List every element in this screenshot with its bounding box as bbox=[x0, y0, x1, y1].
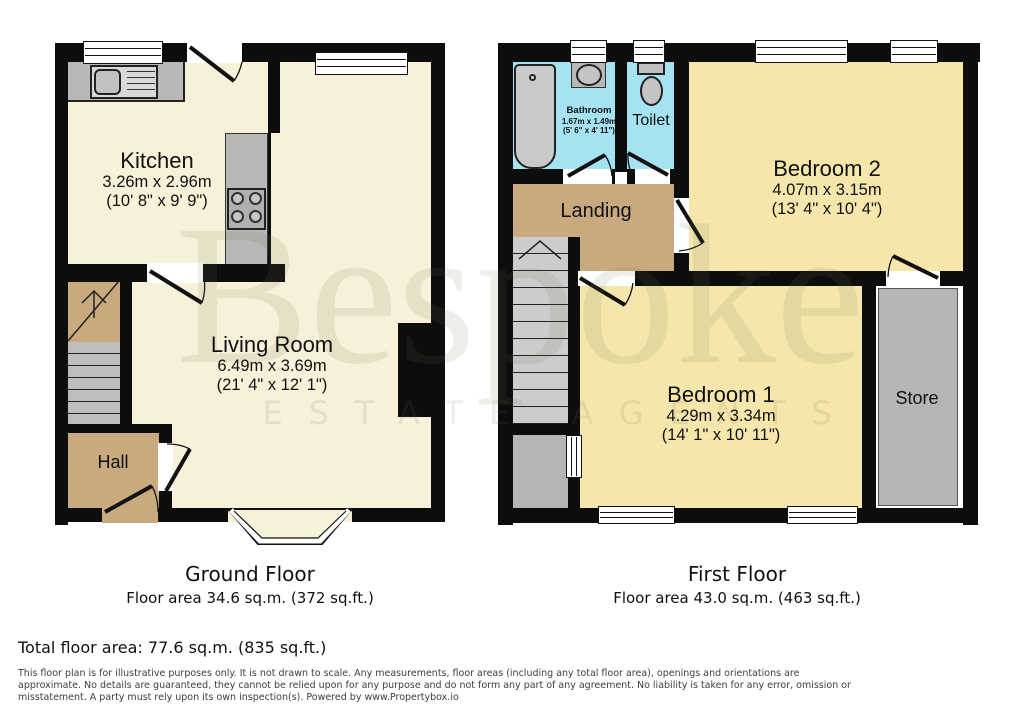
bathtub-plug bbox=[529, 74, 536, 81]
hall-door-opening bbox=[158, 443, 173, 491]
room-name: Bathroom bbox=[562, 106, 616, 117]
kitchen-door-opening bbox=[147, 263, 203, 283]
room-dims-imperial: (10' 8" x 9' 9") bbox=[102, 192, 211, 211]
wall-segment bbox=[55, 43, 68, 525]
hob-burner bbox=[231, 210, 244, 223]
wall-segment bbox=[268, 133, 271, 278]
toilet-door-opening bbox=[635, 169, 670, 184]
sink-basin bbox=[94, 69, 121, 95]
bedroom2-door-opening bbox=[674, 198, 689, 253]
room-dims-imperial: (5' 6" x 4' 11") bbox=[562, 126, 616, 135]
room-name: Bedroom 2 bbox=[772, 156, 883, 181]
bathroom-label: Bathroom 1.67m x 1.49m (5' 6" x 4' 11") bbox=[562, 106, 616, 135]
room-dims-imperial: (14' 1" x 10' 11") bbox=[662, 426, 781, 445]
stairs-upper-landing-patch bbox=[68, 282, 120, 342]
first-floor-area: Floor area 43.0 sq.m. (463 sq.ft.) bbox=[613, 589, 861, 607]
living-room-label: Living Room 6.49m x 3.69m (21' 4" x 12' … bbox=[211, 332, 333, 395]
room-dims-metric: 4.07m x 3.15m bbox=[772, 181, 883, 200]
sink-drainer bbox=[127, 71, 155, 95]
bedroom1-window bbox=[787, 506, 858, 524]
wall-segment bbox=[498, 43, 513, 525]
basin-bowl bbox=[576, 64, 602, 86]
room-name: Bedroom 1 bbox=[662, 382, 781, 407]
first-floor-stairs bbox=[513, 237, 568, 424]
total-floor-area: Total floor area: 77.6 sq.m. (835 sq.ft.… bbox=[18, 638, 326, 657]
bathroom-window bbox=[570, 40, 607, 63]
chimney-breast bbox=[398, 323, 431, 417]
living-room-window bbox=[315, 52, 408, 75]
kitchen-label: Kitchen 3.26m x 2.96m (10' 8" x 9' 9") bbox=[102, 148, 211, 211]
hob-burner bbox=[249, 192, 262, 205]
room-name: Kitchen bbox=[102, 148, 211, 173]
hob-burner bbox=[249, 210, 262, 223]
disclaimer-line: misstatement. A party must rely upon its… bbox=[18, 692, 459, 703]
room-dims-metric: 1.67m x 1.49m bbox=[562, 117, 616, 126]
back-door-opening bbox=[187, 42, 242, 63]
room-dims-metric: 3.26m x 2.96m bbox=[102, 173, 211, 192]
wall-segment bbox=[498, 508, 978, 523]
bedroom1-window bbox=[598, 506, 675, 524]
hall-label: Hall bbox=[97, 452, 128, 473]
store-label: Store bbox=[895, 388, 938, 409]
bedroom1-door-opening bbox=[578, 271, 635, 286]
wall-segment bbox=[963, 43, 978, 525]
wc-bowl bbox=[640, 76, 663, 106]
bay-opening bbox=[228, 508, 352, 522]
room-dims-metric: 4.29m x 3.34m bbox=[662, 407, 781, 426]
front-door-opening bbox=[102, 507, 158, 523]
hob-burner bbox=[231, 192, 244, 205]
wall-segment bbox=[615, 62, 627, 172]
wall-segment bbox=[268, 43, 280, 133]
bedroom2-label: Bedroom 2 4.07m x 3.15m (13' 4" x 10' 4"… bbox=[772, 156, 883, 219]
first-floor-title: First Floor bbox=[688, 562, 786, 586]
disclaimer-line: This floor plan is for illustrative purp… bbox=[18, 668, 799, 679]
room-dims-imperial: (13' 4" x 10' 4") bbox=[772, 200, 883, 219]
wall-segment bbox=[862, 286, 876, 508]
room-name: Living Room bbox=[211, 332, 333, 357]
bedroom2-window bbox=[755, 40, 848, 63]
landing-floor bbox=[580, 237, 674, 271]
wall-segment bbox=[120, 282, 132, 424]
bedroom1-label: Bedroom 1 4.29m x 3.34m (14' 1" x 10' 11… bbox=[662, 382, 781, 445]
ground-floor-area: Floor area 34.6 sq.m. (372 sq.ft.) bbox=[126, 589, 374, 607]
ground-stairs bbox=[68, 342, 120, 424]
wall-segment bbox=[513, 424, 568, 435]
store-door-opening bbox=[886, 271, 940, 286]
wc-cistern bbox=[637, 62, 665, 75]
room-dims-imperial: (21' 4" x 12' 1") bbox=[211, 376, 333, 395]
wall-segment bbox=[55, 424, 172, 433]
landing-label: Landing bbox=[560, 200, 631, 223]
stairwell-void bbox=[513, 435, 568, 508]
wall-segment bbox=[431, 43, 445, 522]
room-dims-metric: 6.49m x 3.69m bbox=[211, 357, 333, 376]
stairwell-window bbox=[566, 435, 582, 478]
floorplan-canvas: Bespoke ESTATE AGENTS Kitchen 3.26m x 2.… bbox=[0, 0, 1020, 713]
ground-floor-title: Ground Floor bbox=[185, 562, 315, 586]
bedroom2-window bbox=[890, 40, 938, 63]
toilet-label: Toilet bbox=[632, 112, 669, 130]
disclaimer-line: approximate. No details are guaranteed, … bbox=[18, 680, 851, 691]
toilet-window bbox=[633, 40, 665, 63]
bathroom-door-opening bbox=[563, 169, 612, 184]
kitchen-window bbox=[83, 41, 163, 64]
